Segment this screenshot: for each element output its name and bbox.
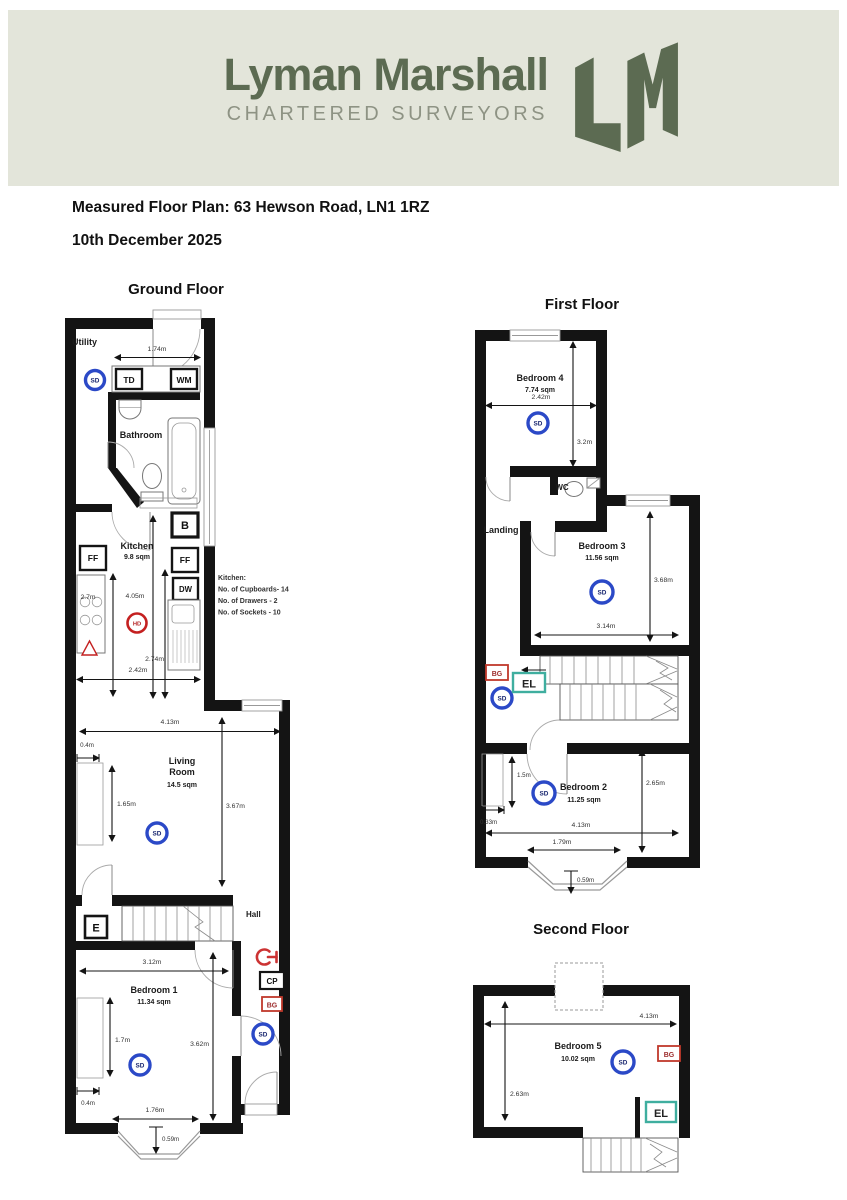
- brand-text-block: Lyman Marshall CHARTERED SURVEYORS: [108, 52, 548, 126]
- bedroom1-label: Bedroom 1: [130, 985, 177, 995]
- tumble-dryer-box: TD: [116, 369, 142, 389]
- bedroom1-alcove: [77, 998, 103, 1078]
- dimension-label: 4.13m: [572, 822, 591, 829]
- dimension-label: 2.65m: [646, 780, 665, 787]
- washing-machine-box: WM: [171, 369, 197, 389]
- dimension-label: 2.42m: [532, 394, 551, 401]
- bedroom4-area-label: 7.74 sqm: [525, 387, 555, 394]
- gas-meter-box-bedroom5: BG: [658, 1046, 680, 1061]
- svg-text:SD: SD: [534, 421, 543, 428]
- dimension-label: 3.68m: [654, 577, 673, 584]
- dimension-label: 3.12m: [143, 959, 162, 966]
- dimension-label: 4.05m: [126, 593, 145, 600]
- ground-bay-window: [118, 1131, 200, 1159]
- smoke-detector-hall: SD: [253, 1024, 273, 1044]
- kitchen-fixtures: B FF FF DW: [77, 513, 200, 670]
- dimension-label: 3.62m: [190, 1041, 209, 1048]
- dimension-label: 2.74m: [145, 656, 164, 663]
- svg-text:SD: SD: [598, 590, 607, 597]
- boiler-box: B: [172, 513, 198, 537]
- smoke-detector-utility: SD: [86, 371, 105, 390]
- wc-fixtures: [565, 478, 600, 497]
- svg-text:FF: FF: [180, 555, 190, 565]
- ground-stairs: [122, 906, 233, 941]
- svg-text:FF: FF: [88, 553, 98, 563]
- svg-text:E: E: [92, 923, 99, 935]
- svg-text:SD: SD: [498, 696, 507, 703]
- dimension-label: 3.14m: [597, 623, 616, 630]
- dimension-label: 3.67m: [226, 803, 245, 810]
- dimension-label: 1.79m: [553, 839, 572, 846]
- dimension-label: 1.74m: [148, 346, 167, 353]
- smoke-detector-bedroom5: SD: [612, 1051, 634, 1073]
- svg-text:SD: SD: [259, 1032, 268, 1039]
- bedroom3-area-label: 11.56 sqm: [585, 555, 618, 562]
- second-floor-plan: SD BG EL Bedroom 5 10.02 sqm 4.13m 2.63m: [450, 940, 720, 1185]
- document-date: 10th December 2025: [72, 232, 222, 250]
- fridge-freezer-box-left: FF: [80, 546, 106, 570]
- bathroom-label: Bathroom: [120, 430, 163, 440]
- dimension-label: 1.76m: [146, 1107, 165, 1114]
- living-room-area-label: 14.5 sqm: [167, 782, 197, 789]
- dimension-label: 3.2m: [577, 439, 592, 446]
- bedroom5-area-label: 10.02 sqm: [561, 1056, 595, 1063]
- smoke-detector-bedroom4: SD: [528, 413, 548, 433]
- svg-text:SD: SD: [540, 791, 549, 798]
- living-room-label-1: Living: [169, 756, 196, 766]
- svg-text:SD: SD: [136, 1063, 145, 1070]
- first-bay-window: [528, 861, 627, 890]
- gas-meter-box-hall: BG: [262, 997, 282, 1011]
- svg-text:SD: SD: [91, 378, 100, 385]
- svg-text:BG: BG: [664, 1052, 675, 1059]
- svg-text:TD: TD: [123, 375, 134, 385]
- electric-meter-box: E: [85, 916, 107, 938]
- bedroom3-label: Bedroom 3: [578, 541, 625, 551]
- fridge-freezer-box-right: FF: [172, 548, 198, 572]
- dimension-label: 1.7m: [115, 1037, 130, 1044]
- utility-counter: TD WM: [112, 366, 200, 392]
- stopcock-icon: [257, 950, 277, 965]
- svg-text:SD: SD: [619, 1060, 628, 1067]
- first-floor-plan: SD SD SD SD BG EL Bedroom 4 7.74 sqm WC …: [450, 320, 720, 900]
- svg-text:No. of Sockets - 10: No. of Sockets - 10: [218, 610, 281, 617]
- bedroom2-area-label: 11.25 sqm: [567, 797, 600, 804]
- smoke-detector-bedroom1: SD: [130, 1055, 150, 1075]
- dimension-label: 1.5m: [517, 772, 531, 779]
- electric-box-bedroom5: EL: [646, 1102, 676, 1122]
- dimension-label: 4.13m: [161, 719, 180, 726]
- dimension-label: 2.63m: [510, 1091, 529, 1098]
- svg-text:B: B: [181, 520, 189, 532]
- dimension-label: 0.4m: [81, 1100, 95, 1107]
- second-stairs: [583, 1138, 678, 1172]
- svg-text:EL: EL: [522, 679, 536, 691]
- drainer-lines: [173, 630, 197, 663]
- first-dimensions: 2.42m 3.2m 3.68m 3.14m 1.5m 0.33m 2.65m …: [480, 342, 678, 893]
- header-band: Lyman Marshall CHARTERED SURVEYORS: [8, 10, 839, 186]
- bedroom1-area-label: 11.34 sqm: [137, 999, 170, 1006]
- dimension-label: 1.65m: [117, 801, 136, 808]
- kitchen-note: Kitchen: No. of Cupboards- 14 No. of Dra…: [218, 575, 289, 617]
- hall-label: Hall: [246, 910, 261, 919]
- brand-tagline: CHARTERED SURVEYORS: [108, 103, 548, 126]
- second-floor-heading: Second Floor: [481, 921, 681, 938]
- dimension-label: 0.59m: [162, 1136, 179, 1143]
- kitchen-area-label: 9.8 sqm: [124, 554, 150, 561]
- bedroom5-label: Bedroom 5: [554, 1041, 601, 1051]
- svg-text:SD: SD: [153, 831, 162, 838]
- dormer-dashed-outline: [555, 963, 603, 1010]
- bedroom2-label: Bedroom 2: [560, 782, 607, 792]
- dimension-label: 0.4m: [80, 742, 94, 749]
- wc-label: WC: [555, 483, 569, 492]
- living-room-label-2: Room: [169, 767, 195, 777]
- first-floor-heading: First Floor: [482, 296, 682, 313]
- svg-text:Kitchen:: Kitchen:: [218, 575, 246, 582]
- gas-meter-box-landing: BG: [486, 665, 508, 680]
- svg-text:DW: DW: [179, 585, 193, 594]
- svg-text:CP: CP: [266, 977, 278, 986]
- landing-label: Landing: [484, 525, 519, 535]
- dishwasher-box: DW: [173, 578, 198, 600]
- first-stairs-lower: [560, 684, 678, 720]
- dimension-label: 0.59m: [577, 877, 594, 884]
- svg-text:BG: BG: [267, 1003, 278, 1010]
- bedroom4-label: Bedroom 4: [516, 373, 563, 383]
- smoke-detector-bedroom3: SD: [591, 581, 613, 603]
- ground-floor-heading: Ground Floor: [76, 281, 276, 298]
- dimension-label: 0.33m: [480, 819, 497, 826]
- svg-text:HD: HD: [133, 622, 141, 628]
- smoke-detector-living: SD: [147, 823, 167, 843]
- smoke-detector-landing: SD: [492, 688, 512, 708]
- svg-text:WM: WM: [176, 375, 191, 385]
- electric-box-landing: EL: [513, 673, 545, 692]
- brand-name: Lyman Marshall: [108, 52, 548, 97]
- kitchen-label: Kitchen: [120, 541, 153, 551]
- svg-text:No. of Drawers - 2: No. of Drawers - 2: [218, 598, 278, 605]
- utility-label: Utility: [72, 337, 97, 347]
- consumer-panel-box: CP: [260, 972, 284, 989]
- living-room-alcove: [77, 763, 103, 845]
- dimension-label: 2.42m: [129, 667, 148, 674]
- ground-floor-plan: TD WM B FF: [55, 308, 385, 1170]
- svg-text:EL: EL: [654, 1108, 668, 1120]
- svg-text:No. of Cupboards- 14: No. of Cupboards- 14: [218, 587, 289, 594]
- svg-text:BG: BG: [492, 671, 503, 678]
- dimension-label: 2.7m: [80, 594, 95, 601]
- lm-monogram-logo-icon: [565, 42, 683, 154]
- smoke-detector-bedroom2: SD: [533, 782, 555, 804]
- dimension-label: 4.13m: [640, 1013, 659, 1020]
- document-title: Measured Floor Plan: 63 Hewson Road, LN1…: [72, 199, 429, 217]
- heat-detector-kitchen: HD: [128, 614, 147, 633]
- document-page: Lyman Marshall CHARTERED SURVEYORS Measu…: [0, 0, 847, 1200]
